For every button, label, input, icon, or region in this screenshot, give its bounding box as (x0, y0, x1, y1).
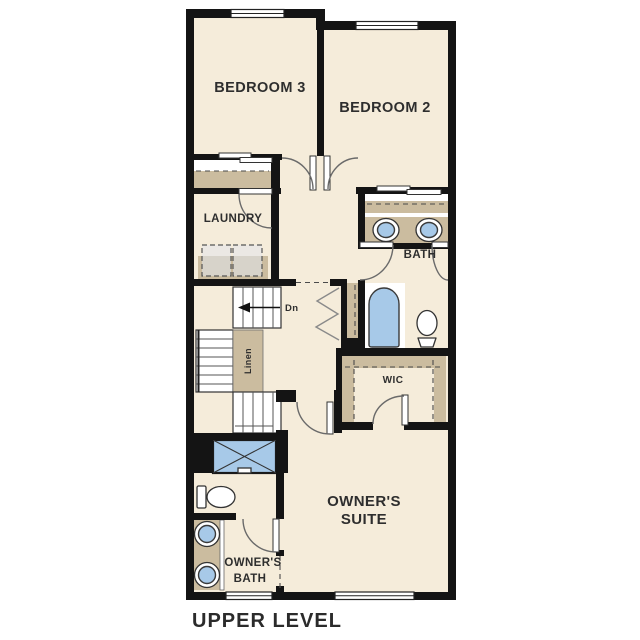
owners-suite-label-line2: SUITE (341, 511, 387, 528)
owners-bath-vanity (194, 520, 224, 590)
owners-suite-window (335, 592, 414, 600)
bath-sink-right (416, 219, 442, 242)
bedroom2-label: BEDROOM 2 (339, 100, 430, 116)
owners-suite-label-line1: OWNER'S (327, 493, 401, 510)
plan-caption: UPPER LEVEL (192, 610, 342, 632)
bath-door (360, 242, 393, 248)
owners-suite-door (327, 402, 333, 434)
wic-door (402, 395, 408, 425)
floor-plan-drawing: BEDROOM 3 BEDROOM 2 LAUNDRY BATH Dn Line… (0, 0, 640, 640)
water-closet-door (432, 242, 448, 248)
bath-sink-left (373, 219, 399, 242)
bath-toilet (417, 311, 437, 348)
bath-vanity (365, 213, 448, 244)
bedroom2-closet-door (407, 190, 441, 195)
laundry-label: LAUNDRY (204, 213, 263, 225)
owners-sink-bottom (195, 563, 220, 588)
laundry-appliances (198, 245, 268, 279)
linen-label: Linen (243, 348, 253, 374)
bedroom2-door (324, 156, 330, 190)
laundry-door (239, 189, 272, 195)
owners-bath-label-line1: OWNER'S (224, 557, 281, 569)
owners-bath-door (273, 519, 279, 552)
shower (213, 440, 276, 473)
owners-sink-top (195, 522, 220, 547)
bath-label: BATH (404, 249, 437, 261)
floor-plan-page: BEDROOM 3 BEDROOM 2 LAUNDRY BATH Dn Line… (0, 0, 640, 640)
owners-bath-label-line2: BATH (234, 573, 267, 585)
bedroom3-closet-door (240, 158, 272, 163)
bathtub (369, 288, 399, 347)
owners-bath-window (226, 592, 272, 600)
bedroom3-label: BEDROOM 3 (214, 80, 305, 96)
stairs-down-label: Dn (285, 303, 298, 314)
bedroom3-window (231, 10, 284, 18)
bedroom3-closet (194, 171, 271, 188)
bedroom2-closet-door (377, 186, 410, 191)
stair-lower-flight (233, 392, 281, 433)
wic-label: WIC (383, 375, 404, 386)
owners-bath-toilet (197, 486, 235, 508)
bedroom2-window (356, 22, 418, 30)
bedroom2-closet (365, 201, 448, 215)
